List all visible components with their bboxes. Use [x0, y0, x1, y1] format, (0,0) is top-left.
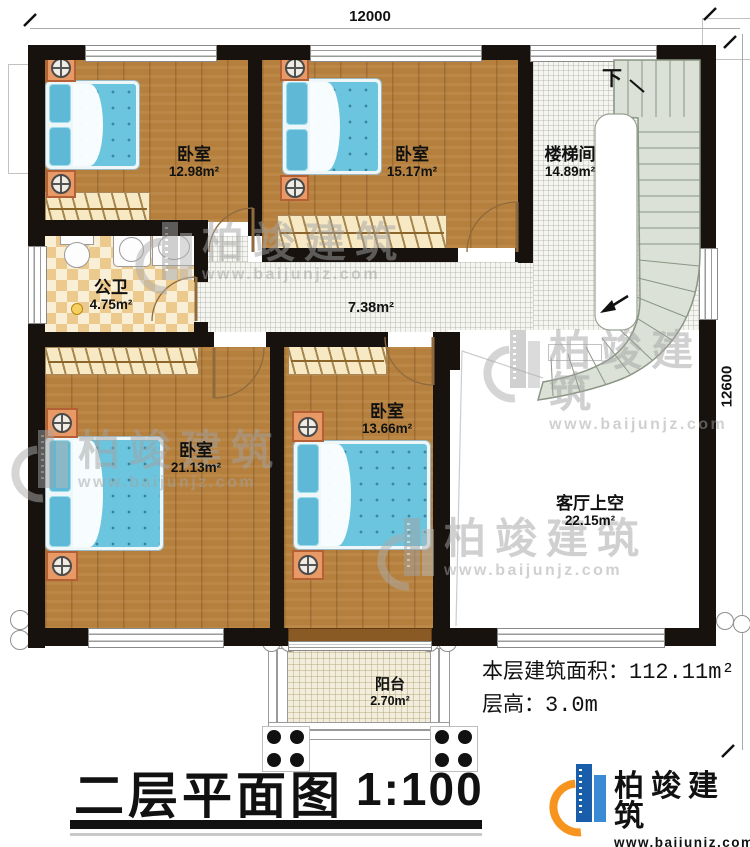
wall-bed3-bed4-divider [270, 332, 284, 628]
title-underline-shadow [70, 833, 482, 836]
window-bathroom-left [28, 246, 47, 324]
brand-building-icon [552, 764, 606, 826]
stair-down-label: 下 [602, 62, 622, 91]
floor-area-label: 本层建筑面积： [482, 660, 629, 683]
lamp-icon [298, 417, 318, 437]
washing-machine-drum [119, 237, 144, 262]
bed-pillows [49, 84, 71, 166]
wardrobe [288, 345, 387, 375]
lamp-icon [298, 555, 318, 575]
nightstand [292, 411, 324, 442]
pillow [49, 127, 71, 166]
window-living-bottom [497, 628, 665, 648]
wall-hall-bottom-left [28, 332, 214, 347]
window-bed1-top [85, 45, 217, 62]
lamp-icon [51, 174, 71, 194]
stairwell-floor [533, 60, 700, 346]
room-label-stairwell: 楼梯间 14.89m² [545, 145, 596, 179]
wardrobe [45, 347, 199, 375]
dimension-line-right [742, 34, 743, 750]
floor-height-line: 层高：3.0m [482, 688, 598, 718]
wall-bed1-bottom [28, 220, 208, 236]
dimension-right-value: 12600 [719, 357, 736, 417]
column-outside-left-a [10, 610, 30, 630]
pillow [49, 84, 71, 123]
toilet-bowl [64, 242, 90, 268]
nightstand [292, 550, 324, 580]
bed-pillows [297, 444, 319, 546]
nightstand [280, 175, 309, 201]
room-label-living-void: 客厅上空 22.15m² [556, 494, 624, 528]
bed-top-mid [282, 78, 382, 175]
lamp-icon [52, 556, 72, 576]
floor-area-line: 本层建筑面积：112.11m² [482, 655, 735, 685]
plan-scale: 1:100 [356, 762, 484, 816]
wall-right [699, 45, 716, 645]
wall-bed2-bottom [262, 248, 458, 262]
balcony-floor [286, 645, 432, 727]
floor-height-value: 3.0m [545, 693, 598, 718]
lamp-icon [51, 58, 71, 78]
floor-area-value: 112.11m² [629, 660, 735, 685]
dimension-line-top [30, 28, 740, 29]
nightstand [46, 408, 78, 438]
nightstand [46, 170, 76, 198]
column-outside-left-b [10, 630, 30, 650]
floor-height-label: 层高： [482, 693, 545, 716]
room-label-hallway: 7.38m² [348, 300, 394, 316]
stair-landing-edge [548, 344, 602, 361]
living-void-area [448, 330, 700, 628]
bed-bottom-mid [293, 440, 431, 550]
floor-drain [71, 303, 83, 315]
wall-hall-bottom-mid [266, 332, 388, 347]
title-underline [70, 820, 482, 829]
pillow [286, 82, 308, 125]
room-label-bedroom-top-left: 卧室 12.98m² [169, 145, 219, 179]
nightstand [46, 551, 78, 581]
room-label-bedroom-bottom-left: 卧室 21.13m² [171, 441, 221, 475]
room-label-bathroom: 公卫 4.75m² [90, 278, 133, 312]
lamp-icon [52, 413, 72, 433]
bed-sheet-fold [73, 84, 103, 166]
pillow [297, 497, 319, 546]
brand-name: 柏竣建筑 [614, 772, 750, 832]
pillow [49, 496, 71, 548]
window-stairwell-right [699, 248, 718, 320]
wardrobe [277, 215, 447, 249]
bed-sheet-fold [321, 444, 351, 546]
floorplan-canvas: 12000 12600 [0, 0, 750, 847]
balcony-door-sill [288, 641, 432, 651]
wall-bed4-right [433, 332, 450, 628]
pillow [286, 129, 308, 172]
brand-logo: 柏竣建筑 www.baijunjz.com [552, 764, 750, 847]
brand-url: www.baijunjz.com [614, 835, 750, 847]
wall-stairwell-left [518, 45, 533, 263]
bed-sheet-fold [310, 82, 340, 171]
dimension-top-value: 12000 [340, 8, 400, 25]
window-bed3-bottom [88, 628, 224, 648]
window-bed2-top [310, 45, 482, 62]
lamp-icon [285, 178, 305, 198]
column-outside-right-a [716, 612, 734, 630]
sink-basin [158, 234, 190, 260]
wall-bed1-bed2-divider [248, 45, 262, 236]
pillow [297, 444, 319, 493]
room-label-balcony: 阳台 2.70m² [370, 677, 410, 708]
bed-sheet-fold [73, 440, 103, 547]
lamp-icon [285, 58, 305, 78]
bed-bottom-left [45, 436, 164, 551]
pillow [49, 440, 71, 492]
bed-pillows [49, 440, 71, 547]
wall-bathroom-right-upper [194, 236, 208, 282]
plan-title: 二层平面图 [74, 756, 344, 828]
room-label-bedroom-bottom-mid: 卧室 13.66m² [362, 402, 412, 436]
window-stairwell-top [530, 45, 657, 62]
column-outside-right-b [733, 615, 750, 633]
bed-pillows [286, 82, 308, 171]
bed-top-left [45, 80, 140, 170]
room-label-bedroom-top-mid: 卧室 15.17m² [387, 145, 437, 179]
